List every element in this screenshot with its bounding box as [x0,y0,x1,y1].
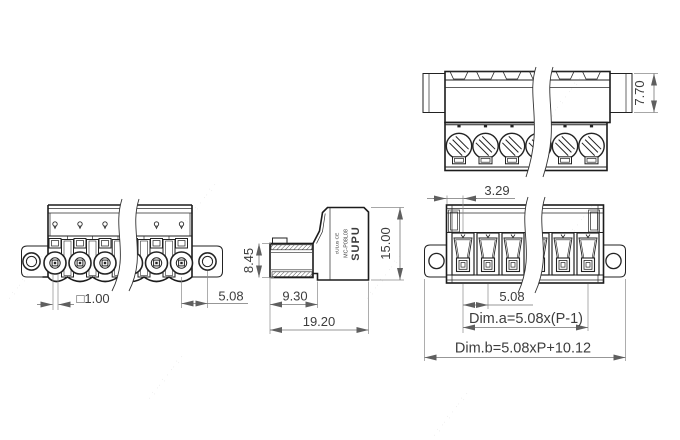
dim-label-front-pin: □1.00 [77,291,110,306]
brand-model: MC-P08L08 [344,229,350,258]
dim-top-header-height: 7.70 [632,74,658,113]
latch [74,239,86,249]
terminal-cell [452,233,474,275]
screw-head-top [552,133,577,158]
front-housing [43,205,193,282]
dim-label-rear-dim-a: Dim.a=5.08x(P-1) [469,311,583,327]
dim-label-side-plug-depth: 9.30 [282,289,307,304]
latch [99,239,111,249]
screw-clamp [146,252,168,274]
pole-tick [484,125,487,128]
pole-tick [510,125,513,128]
castellation [450,72,468,80]
flange-hole [606,253,621,268]
end-cap-right [610,74,632,113]
wire-entry [559,157,572,164]
latch [151,239,163,249]
wire-entry [585,157,598,164]
dim-label-rear-pole-pitch: 5.08 [499,289,524,304]
dim-side-plug-height: 8.45 [241,244,274,278]
dim-label-rear-dim-b: Dim.b=5.08xP+10.12 [455,341,591,357]
pole-tick [457,125,460,128]
dim-label-side-plug-height: 8.45 [241,248,256,273]
brand-name: SUPU [350,226,362,261]
top-view [423,67,632,177]
castellation [556,72,574,80]
wire-entry [453,157,466,164]
side-view: SUPU MC-P08L08 cULus CE [270,208,369,281]
terminal-cell [502,233,524,275]
dim-label-front-flange-pitch: 5.08 [218,289,243,304]
end-cap-left [423,74,445,113]
terminal-cell [552,233,574,275]
mounting-ear-left [425,245,448,277]
flange-hole [199,253,216,270]
flange-hole [429,253,444,268]
technical-drawing-page: · : ·· : · ·· : · · : ·· : · ·· : · · : … [0,0,680,440]
watermark-text: · : ·· : · ·· : · [147,353,186,401]
terminal-cell [477,233,499,275]
vent-keyhole [103,222,107,229]
screw-head-top [499,133,524,158]
watermark-text: · : ·· : · ·· : · [432,390,471,438]
drawing-canvas: · : ·· : · ·· : · · : ·· : · ·· : · · : … [0,0,680,440]
flange-hole [23,253,40,270]
dim-label-side-total-depth: 19.20 [303,314,336,329]
screw-clamp [44,252,66,274]
side-housing: SUPU MC-P08L08 cULus CE [313,208,369,281]
screw-clamp [171,252,193,274]
wire-entry [479,157,492,164]
screw-head-top [579,133,604,158]
castellation [503,72,521,80]
wire-entry [506,157,519,164]
rear-view [425,197,626,293]
vent-keyhole [53,222,57,229]
front-view [22,199,223,291]
dim-rear-edge-to-pole: 3.29 [427,183,515,232]
dim-label-rear-edge-to-pole: 3.29 [484,183,509,198]
castellation [583,72,601,80]
terminal-cell [577,233,599,275]
mounting-ear-right [603,245,626,277]
vent-keyhole [154,222,158,229]
castellation [477,72,495,80]
pole-tick [563,125,566,128]
screw-head-top [446,133,471,158]
vent-keyhole [78,222,82,229]
plug-barrel [270,238,313,278]
pole-tick [590,125,593,128]
dim-label-top-header-height: 7.70 [632,80,647,105]
screw-clamp [69,252,91,274]
screw-head-top [473,133,498,158]
cert-marks: cULus CE [335,233,341,255]
dim-label-rear-body-height: 15.00 [378,227,393,260]
screw-clamp [94,252,116,274]
latch [176,239,188,249]
latch [49,239,61,249]
top-housing [445,72,610,171]
